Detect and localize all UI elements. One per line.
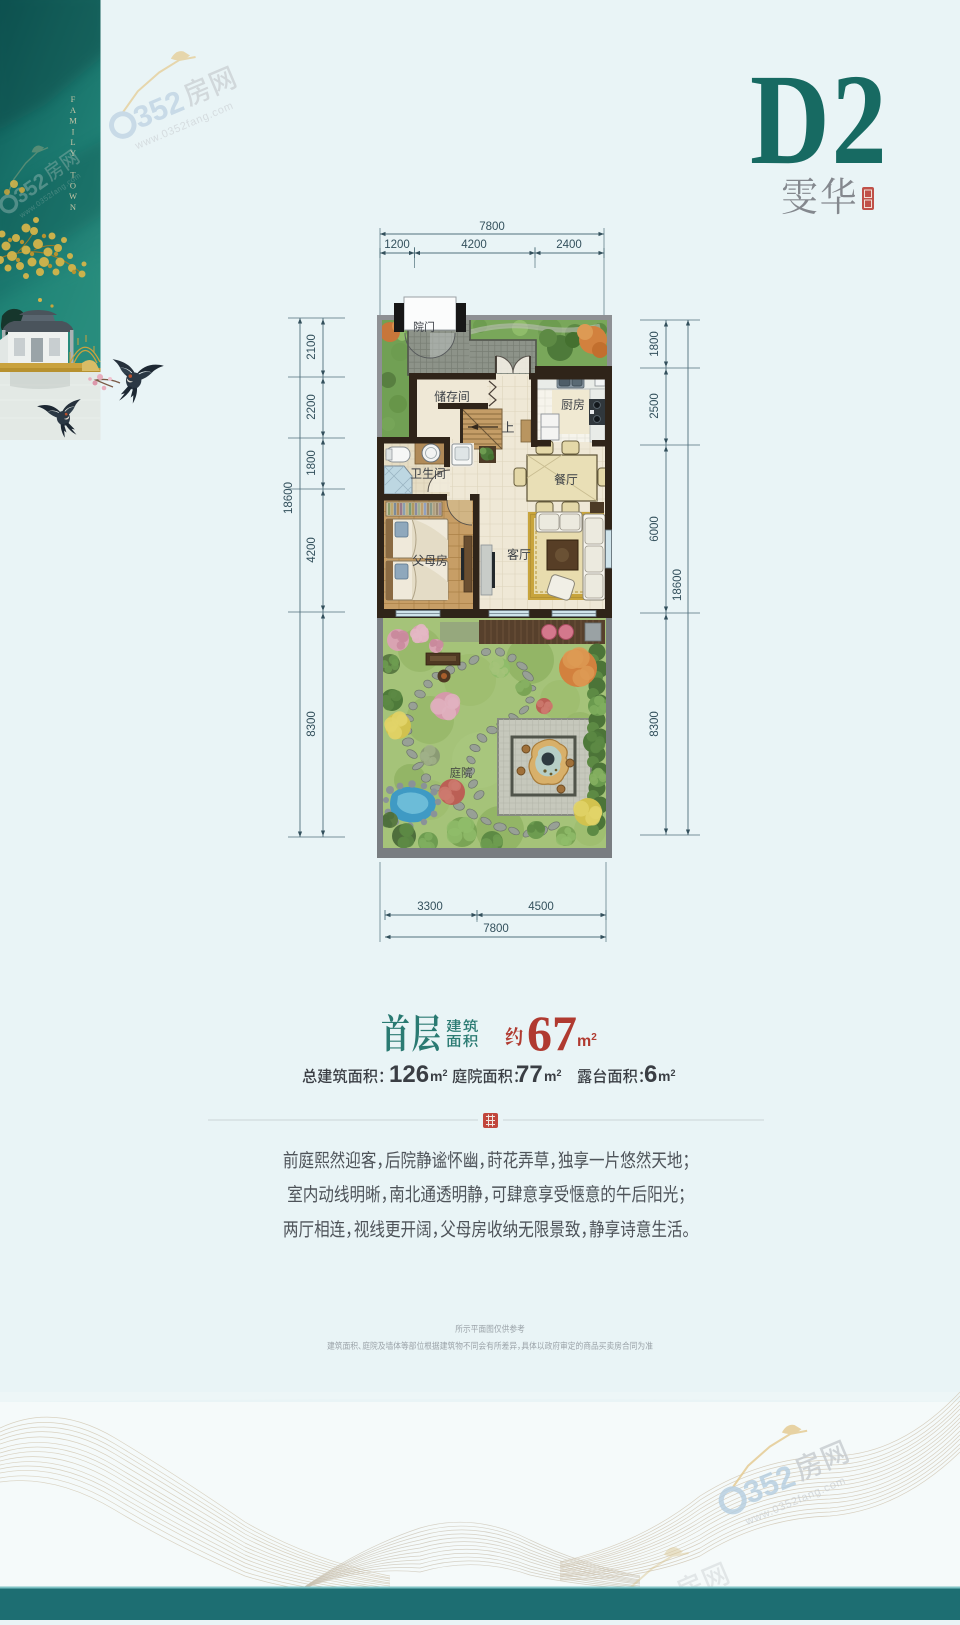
svg-text:W: W (69, 191, 77, 201)
svg-text:L: L (70, 137, 75, 147)
svg-text:4200: 4200 (306, 537, 318, 563)
svg-text:18600: 18600 (672, 569, 684, 601)
svg-text:7800: 7800 (483, 923, 509, 935)
svg-text:7800: 7800 (479, 221, 505, 233)
svg-text:1800: 1800 (649, 331, 661, 357)
svg-text:8300: 8300 (306, 711, 318, 737)
svg-text:2500: 2500 (649, 393, 661, 419)
svg-text:2200: 2200 (306, 394, 318, 420)
svg-text:4500: 4500 (528, 901, 554, 913)
svg-text:1800: 1800 (306, 450, 318, 476)
svg-text:2100: 2100 (306, 334, 318, 360)
svg-text:67: 67 (527, 1005, 577, 1061)
svg-text:3300: 3300 (417, 901, 443, 913)
svg-text:4200: 4200 (461, 239, 487, 251)
svg-text:8300: 8300 (649, 711, 661, 737)
svg-text:N: N (70, 202, 76, 212)
svg-text:F: F (71, 94, 76, 104)
svg-text:6: 6 (644, 1061, 657, 1088)
svg-text:126: 126 (389, 1061, 429, 1088)
svg-text:77: 77 (516, 1061, 543, 1088)
svg-text:1200: 1200 (384, 239, 410, 251)
svg-text:I: I (72, 126, 75, 136)
svg-text:A: A (70, 105, 77, 115)
svg-text:6000: 6000 (649, 516, 661, 542)
svg-text:D2: D2 (750, 48, 888, 192)
svg-text:M: M (69, 116, 77, 126)
svg-text:2400: 2400 (556, 239, 582, 251)
svg-text:18600: 18600 (283, 482, 295, 514)
